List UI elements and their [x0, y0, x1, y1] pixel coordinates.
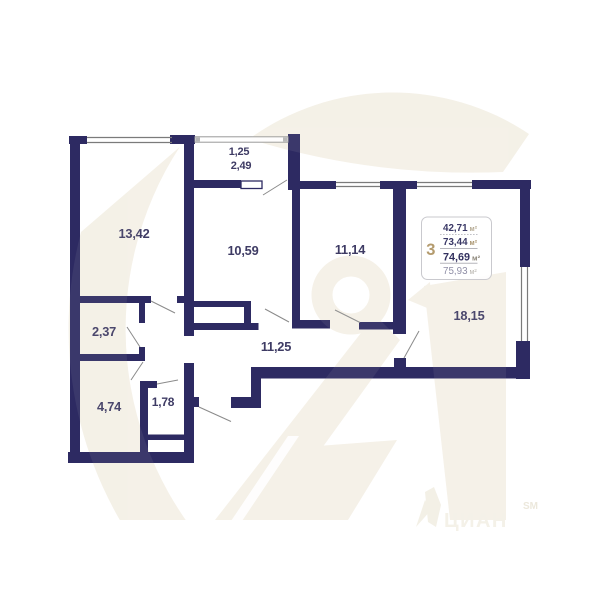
svg-text:10,59: 10,59 — [227, 243, 258, 258]
svg-text:1,78: 1,78 — [152, 395, 175, 409]
svg-text:1,25: 1,25 — [229, 146, 250, 158]
svg-text:3: 3 — [426, 241, 435, 259]
svg-text:2,49: 2,49 — [231, 160, 252, 172]
svg-text:11,14: 11,14 — [335, 242, 366, 257]
svg-text:74,69м²: 74,69м² — [443, 252, 481, 264]
svg-text:11,25: 11,25 — [261, 339, 291, 354]
svg-text:SM: SM — [523, 501, 538, 512]
